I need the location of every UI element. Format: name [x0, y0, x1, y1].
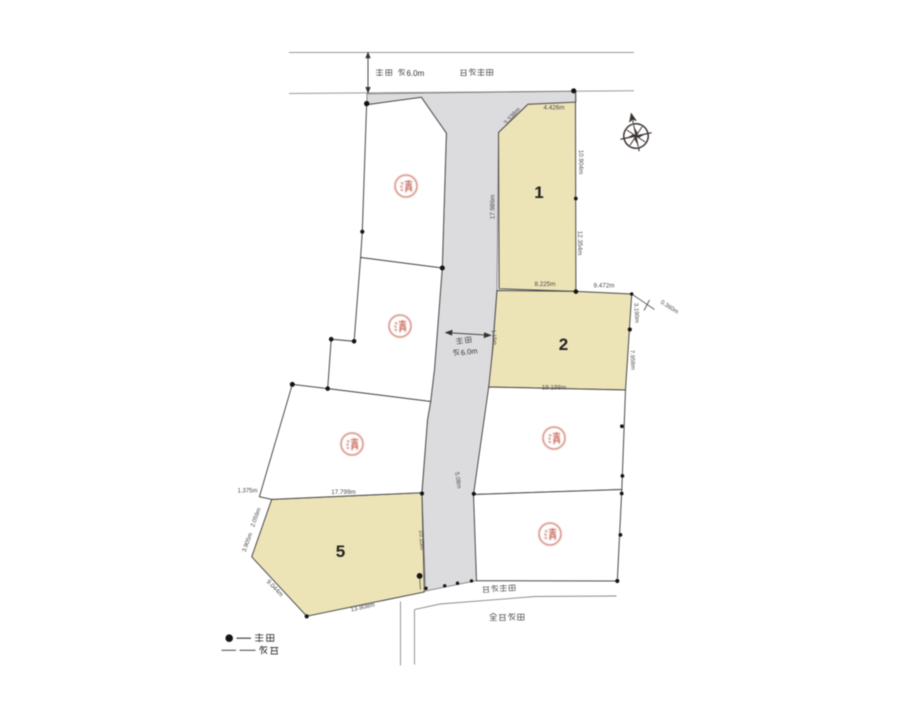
svg-text:3.190m: 3.190m — [632, 303, 639, 323]
svg-text:10.10m: 10.10m — [417, 530, 424, 550]
svg-text:9.472m: 9.472m — [593, 283, 614, 290]
svg-text:19.198m: 19.198m — [542, 385, 567, 392]
svg-text:17.799m: 17.799m — [331, 489, 356, 496]
svg-text:10.904m: 10.904m — [577, 150, 584, 175]
svg-text:17.986m: 17.986m — [489, 195, 496, 220]
svg-text:2: 2 — [559, 335, 568, 354]
svg-text:8.225m: 8.225m — [534, 281, 555, 288]
svg-text:5: 5 — [336, 542, 345, 561]
svg-text:1.375m: 1.375m — [237, 489, 257, 495]
svg-text:6.0m: 6.0m — [407, 69, 425, 78]
svg-text:1: 1 — [534, 183, 543, 202]
svg-text:7.958m: 7.958m — [628, 350, 635, 370]
svg-text:12.354m: 12.354m — [576, 231, 583, 256]
svg-text:4.426m: 4.426m — [543, 105, 564, 112]
